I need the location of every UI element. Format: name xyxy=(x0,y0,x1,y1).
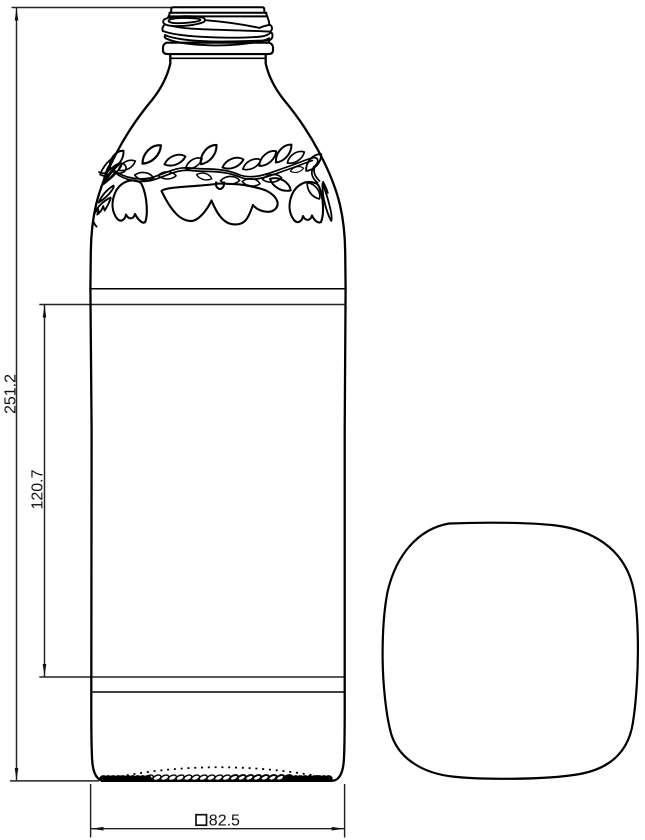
svg-text:82.5: 82.5 xyxy=(209,813,240,830)
svg-text:120.7: 120.7 xyxy=(29,469,46,509)
svg-text:251.2: 251.2 xyxy=(2,374,19,414)
